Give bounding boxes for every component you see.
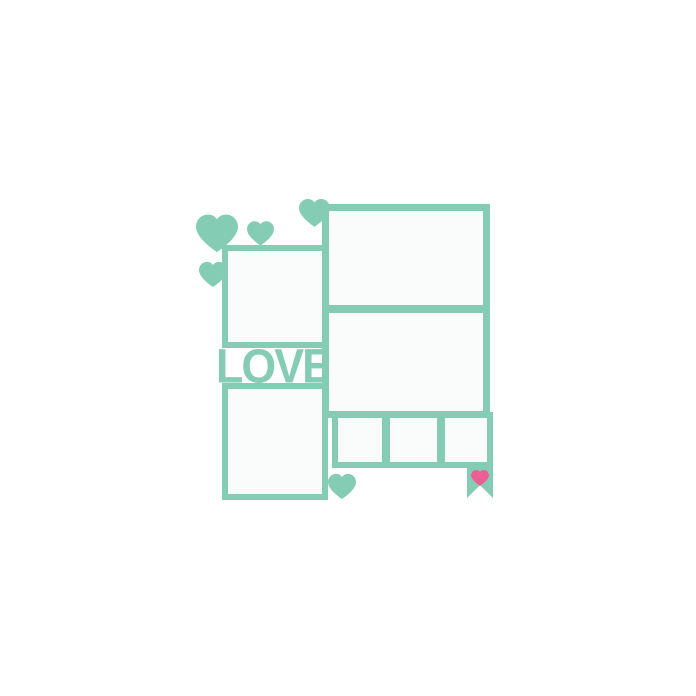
frame-divider xyxy=(322,305,490,313)
heart-icon xyxy=(328,472,356,501)
heart-icon xyxy=(199,261,227,288)
strip-divider xyxy=(382,412,390,468)
heart-icon xyxy=(299,198,330,228)
scrapbook-love-template: LOVE xyxy=(0,0,696,696)
heart-icon xyxy=(247,220,274,247)
photo-frame-right xyxy=(322,204,490,418)
strip-divider xyxy=(437,412,445,468)
pink-heart-icon xyxy=(471,470,489,486)
love-word: LOVE xyxy=(219,345,327,386)
photo-strip xyxy=(332,412,493,468)
heart-icon-large xyxy=(196,213,238,254)
photo-frame-bottom-left xyxy=(222,383,328,500)
photo-frame-top-left xyxy=(222,245,328,348)
